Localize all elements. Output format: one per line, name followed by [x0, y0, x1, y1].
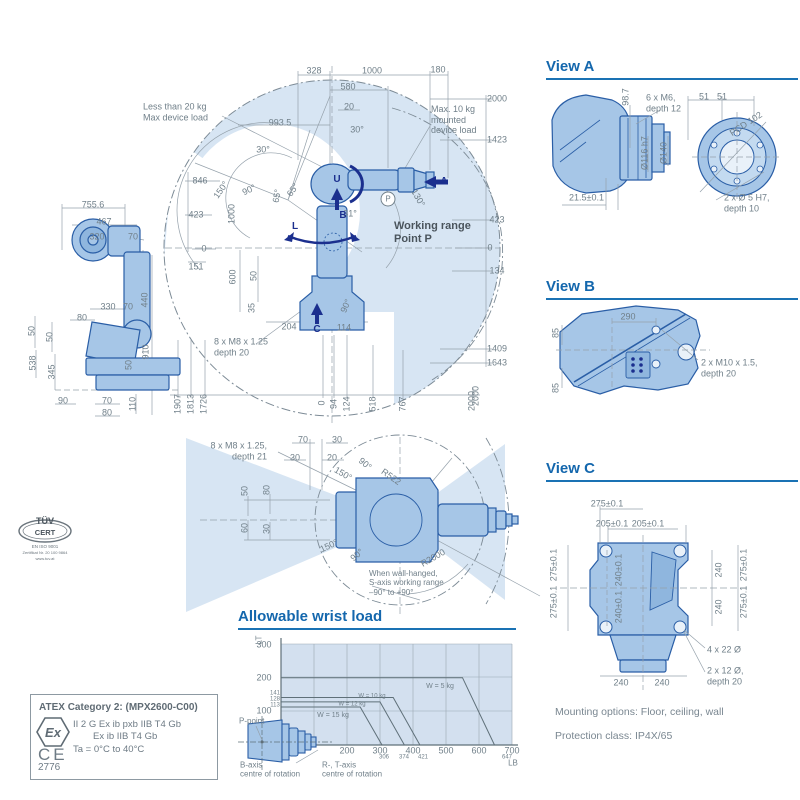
- wrist-load-rule: [238, 628, 516, 630]
- view-b-drawing: [556, 306, 710, 394]
- view-c-title: View C: [546, 460, 595, 477]
- atex-temperature-range: Ta = 0°C to 40°C: [73, 744, 144, 755]
- atex-title: ATEX Category 2: (MPX2600-C00): [39, 702, 198, 713]
- technical-drawing: TÜV CERT EN ISO 9001 Zertifikat Nr. 20 1…: [0, 0, 800, 800]
- view-a-flange-face: [692, 112, 782, 202]
- view-b-title: View B: [546, 278, 595, 295]
- tuv-cert-logo: TÜV CERT EN ISO 9001 Zertifikat Nr. 20 1…: [19, 516, 71, 561]
- tuv-line5: www.tuv.at: [35, 556, 55, 561]
- atex-marking-line2: Ex ib IIB T4 Gb: [93, 731, 157, 742]
- atex-marking-line1: II 2 G Ex ib pxb IIB T4 Gb: [73, 719, 181, 730]
- view-a-rule: [546, 78, 798, 80]
- tuv-line4: Zertifikat Nr. 20 100 9864: [23, 550, 69, 555]
- view-a-title: View A: [546, 58, 594, 75]
- mounting-options-note: Mounting options: Floor, ceiling, wall: [555, 706, 724, 718]
- view-c-rule: [546, 480, 798, 482]
- tuv-line2: CERT: [35, 528, 56, 537]
- view-b-rule: [546, 298, 798, 300]
- tuv-line1: TÜV: [36, 516, 54, 526]
- atex-certification-box: ATEX Category 2: (MPX2600-C00) Ex II 2 G…: [30, 694, 218, 780]
- tuv-line3: EN ISO 9001: [32, 544, 59, 549]
- wrist-load-chart: [238, 638, 518, 770]
- atex-notified-body-number: 2776: [38, 762, 60, 773]
- view-a-drawing: [552, 95, 782, 210]
- ex-mark-icon: Ex: [36, 717, 70, 747]
- svg-text:Ex: Ex: [45, 725, 62, 740]
- protection-class-note: Protection class: IP4X/65: [555, 730, 672, 742]
- wrist-load-title: Allowable wrist load: [238, 608, 382, 625]
- datasheet-page: TÜV CERT EN ISO 9001 Zertifikat Nr. 20 1…: [0, 0, 800, 800]
- view-c-drawing: [560, 505, 750, 690]
